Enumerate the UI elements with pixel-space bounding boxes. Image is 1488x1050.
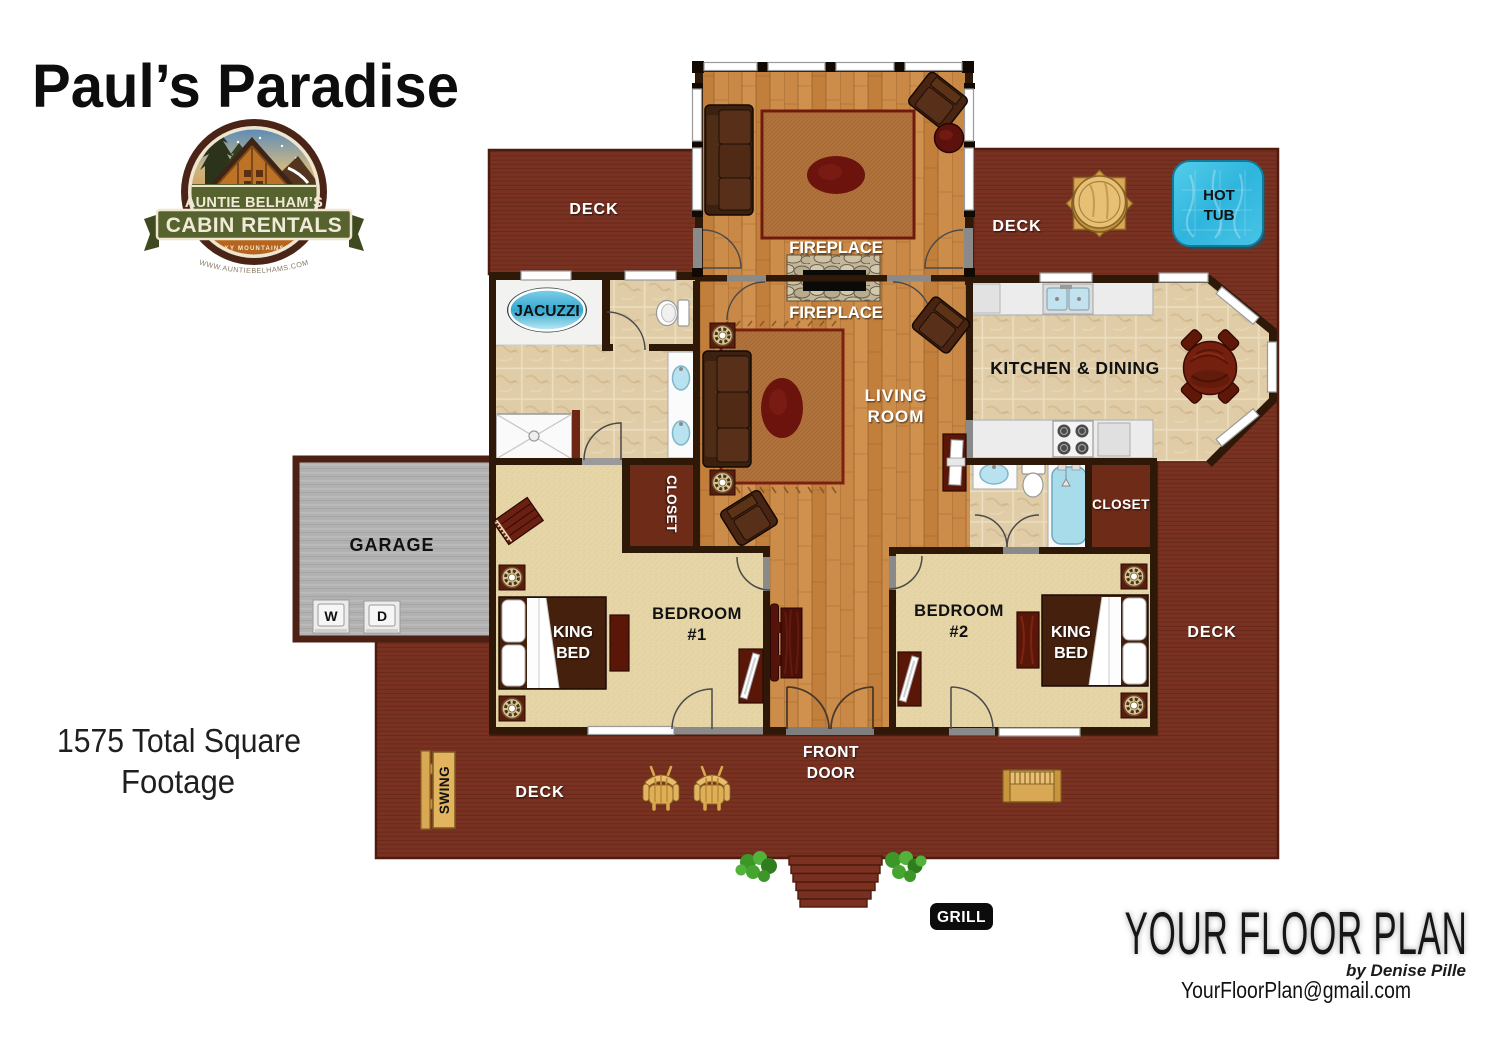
svg-text:CLOSET: CLOSET [664, 475, 679, 533]
svg-text:CABIN RENTALS: CABIN RENTALS [166, 214, 342, 237]
svg-text:BEDROOM: BEDROOM [652, 605, 742, 623]
svg-text:#1: #1 [687, 626, 706, 644]
svg-text:ROOM: ROOM [868, 407, 925, 426]
svg-text:DECK: DECK [992, 218, 1041, 235]
svg-text:TUB: TUB [1204, 207, 1235, 224]
svg-text:YOUR FLOOR PLAN: YOUR FLOOR PLAN [1125, 900, 1468, 967]
svg-text:BED: BED [1054, 645, 1088, 662]
svg-text:GRILL: GRILL [937, 909, 986, 926]
svg-text:SWING: SWING [437, 766, 452, 814]
svg-text:Footage: Footage [121, 763, 235, 800]
svg-text:W: W [324, 608, 338, 624]
svg-text:BEDROOM: BEDROOM [914, 602, 1004, 620]
svg-text:D: D [377, 608, 387, 624]
svg-text:BED: BED [556, 645, 590, 662]
svg-text:KING: KING [553, 624, 593, 641]
svg-text:AUNTIE BELHAM’S: AUNTIE BELHAM’S [185, 195, 323, 211]
svg-text:DECK: DECK [569, 201, 618, 218]
svg-text:DOOR: DOOR [807, 765, 856, 782]
svg-text:GARAGE: GARAGE [349, 535, 434, 555]
svg-text:1575 Total Square: 1575 Total Square [57, 722, 301, 759]
svg-text:KING: KING [1051, 624, 1091, 641]
svg-text:CLOSET: CLOSET [1092, 497, 1150, 512]
svg-text:LIVING: LIVING [865, 386, 928, 405]
svg-text:FRONT: FRONT [803, 744, 859, 761]
svg-text:YourFloorPlan@gmail.com: YourFloorPlan@gmail.com [1181, 977, 1411, 1003]
svg-text:FIREPLACE: FIREPLACE [789, 239, 883, 257]
svg-text:DECK: DECK [1187, 624, 1236, 641]
svg-text:KITCHEN & DINING: KITCHEN & DINING [990, 358, 1159, 378]
svg-text:HOT: HOT [1203, 187, 1235, 204]
svg-text:Paul’s Paradise: Paul’s Paradise [32, 52, 459, 120]
svg-text:#2: #2 [949, 623, 968, 641]
svg-text:DECK: DECK [515, 784, 564, 801]
svg-text:JACUZZI: JACUZZI [514, 303, 579, 320]
svg-text:FIREPLACE: FIREPLACE [789, 304, 883, 322]
